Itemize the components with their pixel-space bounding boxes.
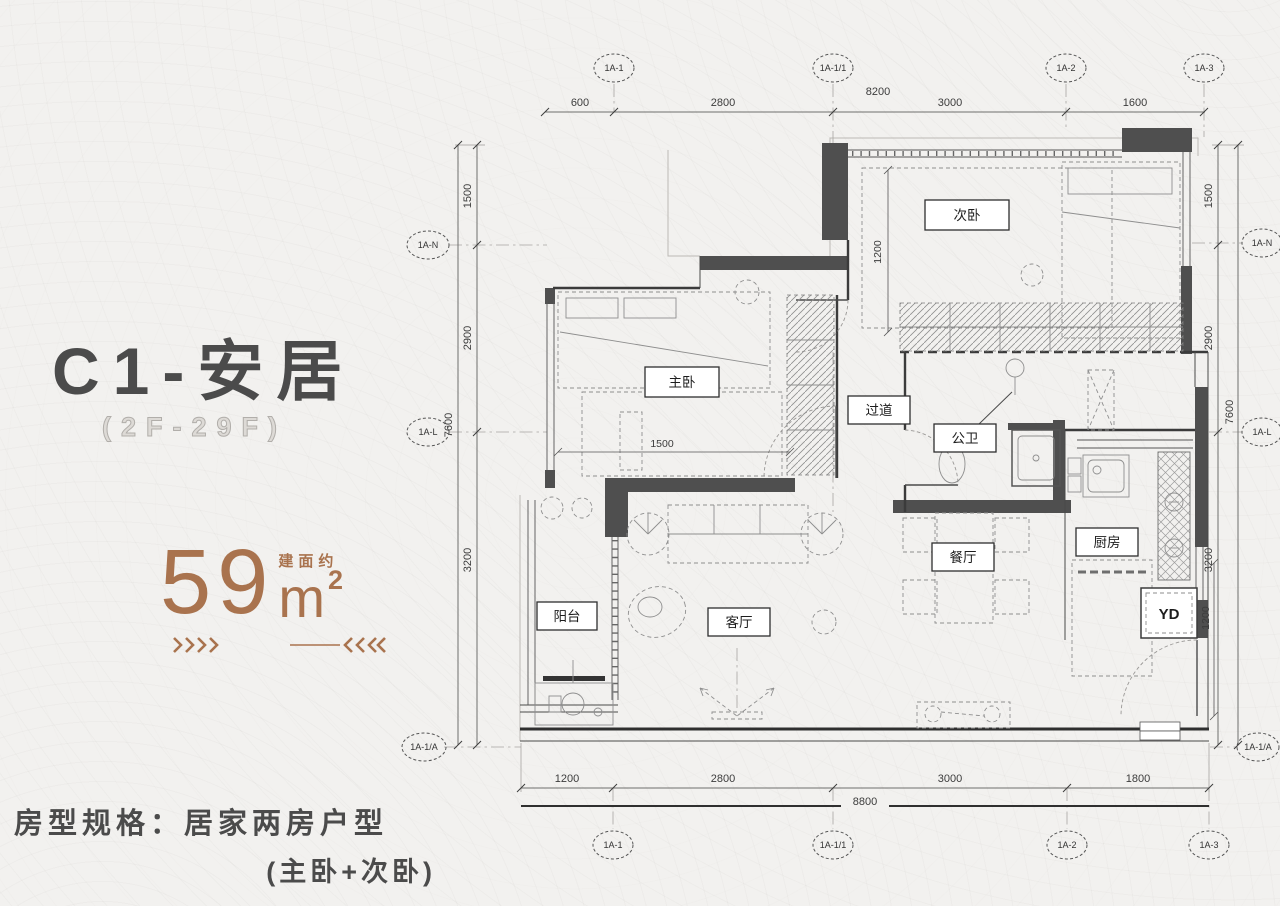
- room-label-secondary-bedroom: 次卧: [925, 200, 1009, 230]
- svg-text:主卧: 主卧: [669, 375, 696, 390]
- svg-text:1A-L: 1A-L: [418, 427, 437, 437]
- svg-text:1A-N: 1A-N: [418, 240, 439, 250]
- room-label-balcony: 阳台: [537, 602, 597, 630]
- dim-text: 3200: [1203, 548, 1215, 572]
- svg-text:1A-1/1: 1A-1/1: [820, 63, 847, 73]
- dimensions-bottom: 1200 2800 3000 1800 8800 1A-1 1A-1/1 1A-…: [517, 743, 1229, 859]
- room-label-dining: 餐厅: [932, 543, 994, 571]
- dim-total-text: 7600: [1224, 400, 1236, 424]
- floorplan-page: C1-安居 (2F-29F) 59 建面约 m 2 房型规格：居家两房: [0, 0, 1280, 906]
- room-label-corridor: 过道: [848, 396, 910, 424]
- dim-text: 1200: [555, 773, 579, 785]
- svg-text:1A-1: 1A-1: [604, 63, 623, 73]
- dim-text: 1200: [872, 240, 884, 264]
- dimensions-right: 1500 2900 3200 7600 1A-N 1A-L 1A-1/A: [1203, 141, 1280, 761]
- axis-bubble: 1A-N 1A-L 1A-1/A: [402, 231, 449, 761]
- dimensions-left: 1500 2900 3200 7600 1A-N 1A-L 1A-1/A: [402, 141, 485, 761]
- svg-text:次卧: 次卧: [954, 208, 981, 223]
- svg-text:客厅: 客厅: [726, 614, 753, 630]
- entry-door: [1121, 640, 1197, 716]
- svg-text:厨房: 厨房: [1094, 535, 1121, 550]
- walls: [520, 128, 1209, 741]
- dim-text: 3000: [938, 97, 962, 109]
- room-label-duct: YD: [1159, 606, 1180, 623]
- windows: [528, 150, 1203, 705]
- dim-text: 3000: [938, 773, 962, 785]
- dim-text: 1500: [462, 184, 474, 208]
- dim-text: 1800: [1126, 773, 1150, 785]
- kitchen-fixtures: [1068, 370, 1197, 676]
- axis-bubble: 1A-1 1A-1/1 1A-2 1A-3: [594, 54, 1224, 82]
- interior-dimensions: 1200 1500 1200: [554, 166, 1218, 720]
- dim-text: 1500: [1203, 184, 1215, 208]
- entry-furniture: [917, 702, 1180, 740]
- dim-text: 600: [571, 97, 589, 109]
- svg-text:1A-N: 1A-N: [1252, 238, 1273, 248]
- axis-bubble: 1A-1 1A-1/1 1A-2 1A-3: [593, 831, 1229, 859]
- dimensions-top: 600 2800 3000 1600 8200 1A-1 1A-1/1 1A-2…: [541, 54, 1224, 116]
- svg-text:1A-L: 1A-L: [1252, 427, 1271, 437]
- svg-text:餐厅: 餐厅: [950, 550, 977, 565]
- dim-text: 2900: [1203, 326, 1215, 350]
- room-label-kitchen: 厨房: [1076, 528, 1138, 556]
- svg-text:1A-3: 1A-3: [1199, 840, 1218, 850]
- floorplan-drawing: 600 2800 3000 1600 8200 1A-1 1A-1/1 1A-2…: [0, 0, 1280, 906]
- axis-bubble: 1A-N 1A-L 1A-1/A: [1237, 229, 1280, 761]
- dim-text: 1600: [1123, 97, 1147, 109]
- svg-text:YD: YD: [1159, 606, 1180, 623]
- dim-text: 1500: [650, 438, 674, 450]
- dim-total-text: 8200: [866, 86, 890, 98]
- room-label-bathroom: 公卫: [934, 424, 996, 452]
- svg-text:1A-1/1: 1A-1/1: [820, 840, 847, 850]
- dim-text: 1200: [1200, 606, 1212, 630]
- bathroom-fixtures: [939, 359, 1060, 486]
- svg-text:1A-1: 1A-1: [603, 840, 622, 850]
- context-outline: [520, 138, 1198, 741]
- furniture: [535, 162, 1197, 740]
- dim-text: 2800: [711, 97, 735, 109]
- room-label-living: 客厅: [708, 608, 770, 636]
- svg-text:1A-1/A: 1A-1/A: [410, 742, 438, 752]
- dim-text: 2800: [711, 773, 735, 785]
- svg-text:1A-3: 1A-3: [1194, 63, 1213, 73]
- svg-text:阳台: 阳台: [554, 609, 581, 624]
- dim-text: 2900: [462, 326, 474, 350]
- svg-text:公卫: 公卫: [952, 431, 979, 446]
- dim-total-text: 8800: [853, 796, 877, 808]
- svg-text:过道: 过道: [866, 403, 893, 418]
- svg-text:1A-2: 1A-2: [1056, 63, 1075, 73]
- secondary-bedroom-furniture: [862, 162, 1183, 351]
- room-label-master-bedroom: 主卧: [645, 367, 719, 397]
- svg-text:1A-2: 1A-2: [1057, 840, 1076, 850]
- svg-text:1A-1/A: 1A-1/A: [1244, 742, 1272, 752]
- dim-text: 3200: [462, 548, 474, 572]
